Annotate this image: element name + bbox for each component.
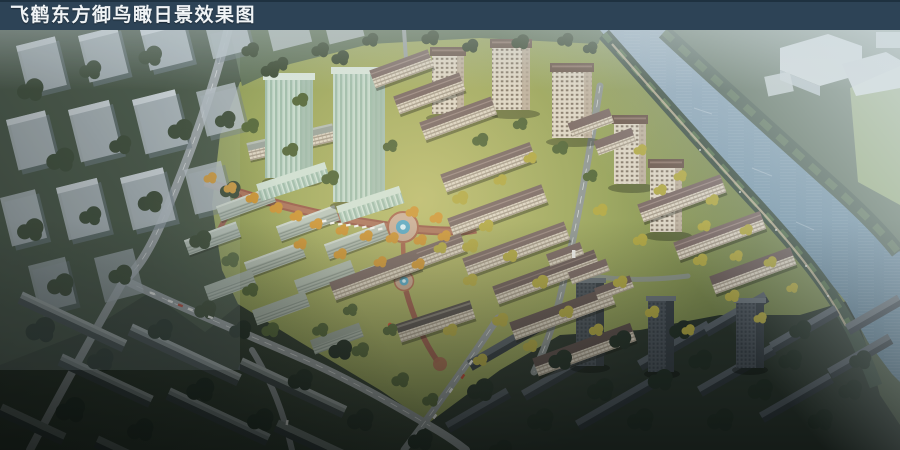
- aerial-rendering: [0, 30, 900, 450]
- atmosphere-overlays: [0, 30, 900, 450]
- page-title: 飞鹤东方御鸟瞰日景效果图: [0, 2, 256, 30]
- title-bar: 飞鹤东方御鸟瞰日景效果图: [0, 0, 900, 30]
- screenshot-root: 飞鹤东方御鸟瞰日景效果图: [0, 0, 900, 450]
- rendering-scene: [0, 30, 900, 450]
